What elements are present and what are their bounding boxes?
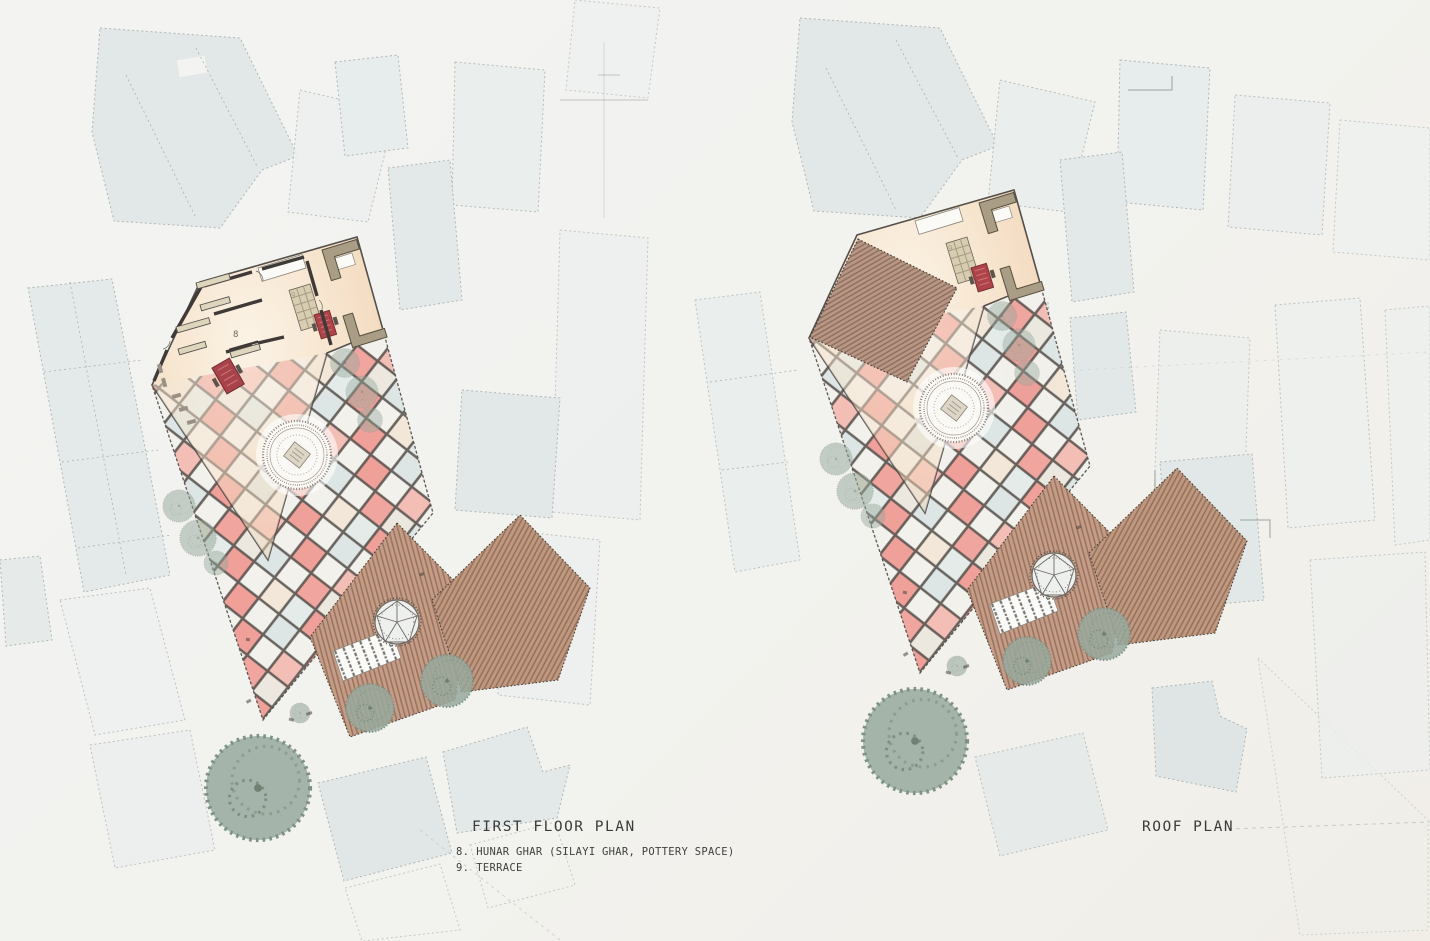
site-plans-drawing — [0, 0, 1430, 941]
room-label-hunar-ghar: 8 — [233, 330, 238, 340]
legend-item-number: 9. — [456, 860, 469, 876]
legend-item-label: TERRACE — [476, 860, 522, 876]
first-floor-plan-title: FIRST FLOOR PLAN — [472, 819, 636, 835]
first-floor-plan-legend: 8. HUNAR GHAR (SILAYI GHAR, POTTERY SPAC… — [456, 844, 735, 876]
sheet-canvas: FIRST FLOOR PLAN 8. HUNAR GHAR (SILAYI G… — [0, 0, 1430, 941]
legend-item-terrace: 9. TERRACE — [456, 860, 735, 876]
roof-plan-title: ROOF PLAN — [1142, 819, 1234, 835]
legend-item-hunar-ghar: 8. HUNAR GHAR (SILAYI GHAR, POTTERY SPAC… — [456, 844, 735, 860]
legend-item-number: 8. — [456, 844, 469, 860]
room-label-terrace: 9 — [291, 291, 296, 300]
room-label-terrace-roof: 9 — [948, 244, 953, 253]
legend-item-label: HUNAR GHAR (SILAYI GHAR, POTTERY SPACE) — [476, 844, 734, 860]
